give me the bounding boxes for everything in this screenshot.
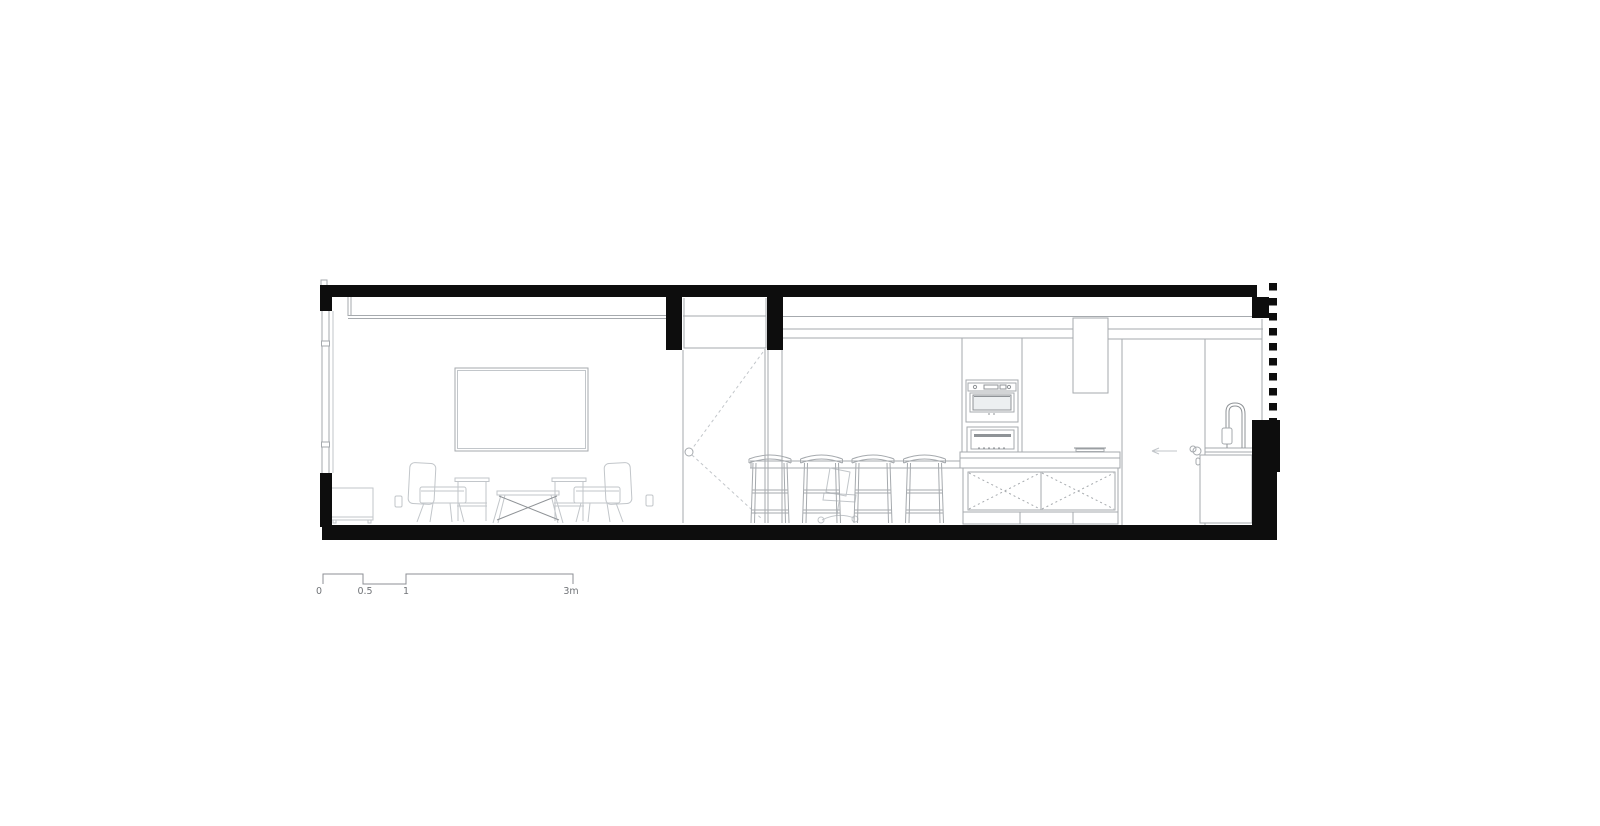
bar-stool-3 [852, 455, 894, 523]
window-mullion [322, 341, 330, 346]
left-window [322, 311, 334, 473]
cooktop [1074, 448, 1106, 452]
slide-direction-arrow-icon [1152, 448, 1177, 454]
side-table-right [552, 478, 586, 521]
section-canvas: 0 0.5 1 3m [0, 0, 1600, 826]
architectural-section-drawing: 0 0.5 1 3m [0, 0, 1600, 826]
kitchen-island [960, 452, 1120, 524]
tv-panel [455, 368, 588, 451]
wall-column [666, 297, 682, 350]
scale-bar: 0 0.5 1 3m [316, 574, 579, 597]
door-handle-icon [1193, 447, 1201, 455]
oven-stack [966, 380, 1018, 452]
bar-stool-2 [801, 455, 843, 523]
armchair-left [408, 462, 466, 522]
power-outlet [395, 496, 402, 507]
parapet-notch [321, 280, 327, 286]
scale-label-0: 0 [316, 586, 322, 597]
sink-cabinet [1190, 446, 1252, 523]
sliding-door [1122, 339, 1205, 525]
existing-wall-hatch [1269, 283, 1277, 540]
coffee-table [493, 491, 563, 523]
scale-label-05: 0.5 [357, 586, 372, 597]
bar-stool-1 [749, 455, 791, 523]
ceiling-track [348, 297, 1263, 329]
floor-slab [322, 525, 1277, 540]
power-outlet [646, 495, 653, 506]
door-handle-icon [685, 448, 693, 456]
kitchen-back-wall [768, 319, 1262, 523]
sink-faucet [1222, 403, 1245, 448]
wall-recess [684, 298, 766, 348]
roof-slab [321, 285, 1257, 297]
wall-column [767, 297, 783, 350]
scale-label-3m: 3m [563, 586, 578, 597]
bar-stool-4 [904, 455, 946, 523]
extractor-duct [1073, 318, 1108, 393]
media-cabinet [331, 488, 373, 523]
sink-counter [1205, 448, 1252, 452]
window-mullion [322, 442, 330, 447]
side-table-left [455, 478, 489, 521]
scale-label-1: 1 [403, 586, 409, 597]
interior-door [683, 349, 765, 523]
office-chair [818, 468, 858, 523]
